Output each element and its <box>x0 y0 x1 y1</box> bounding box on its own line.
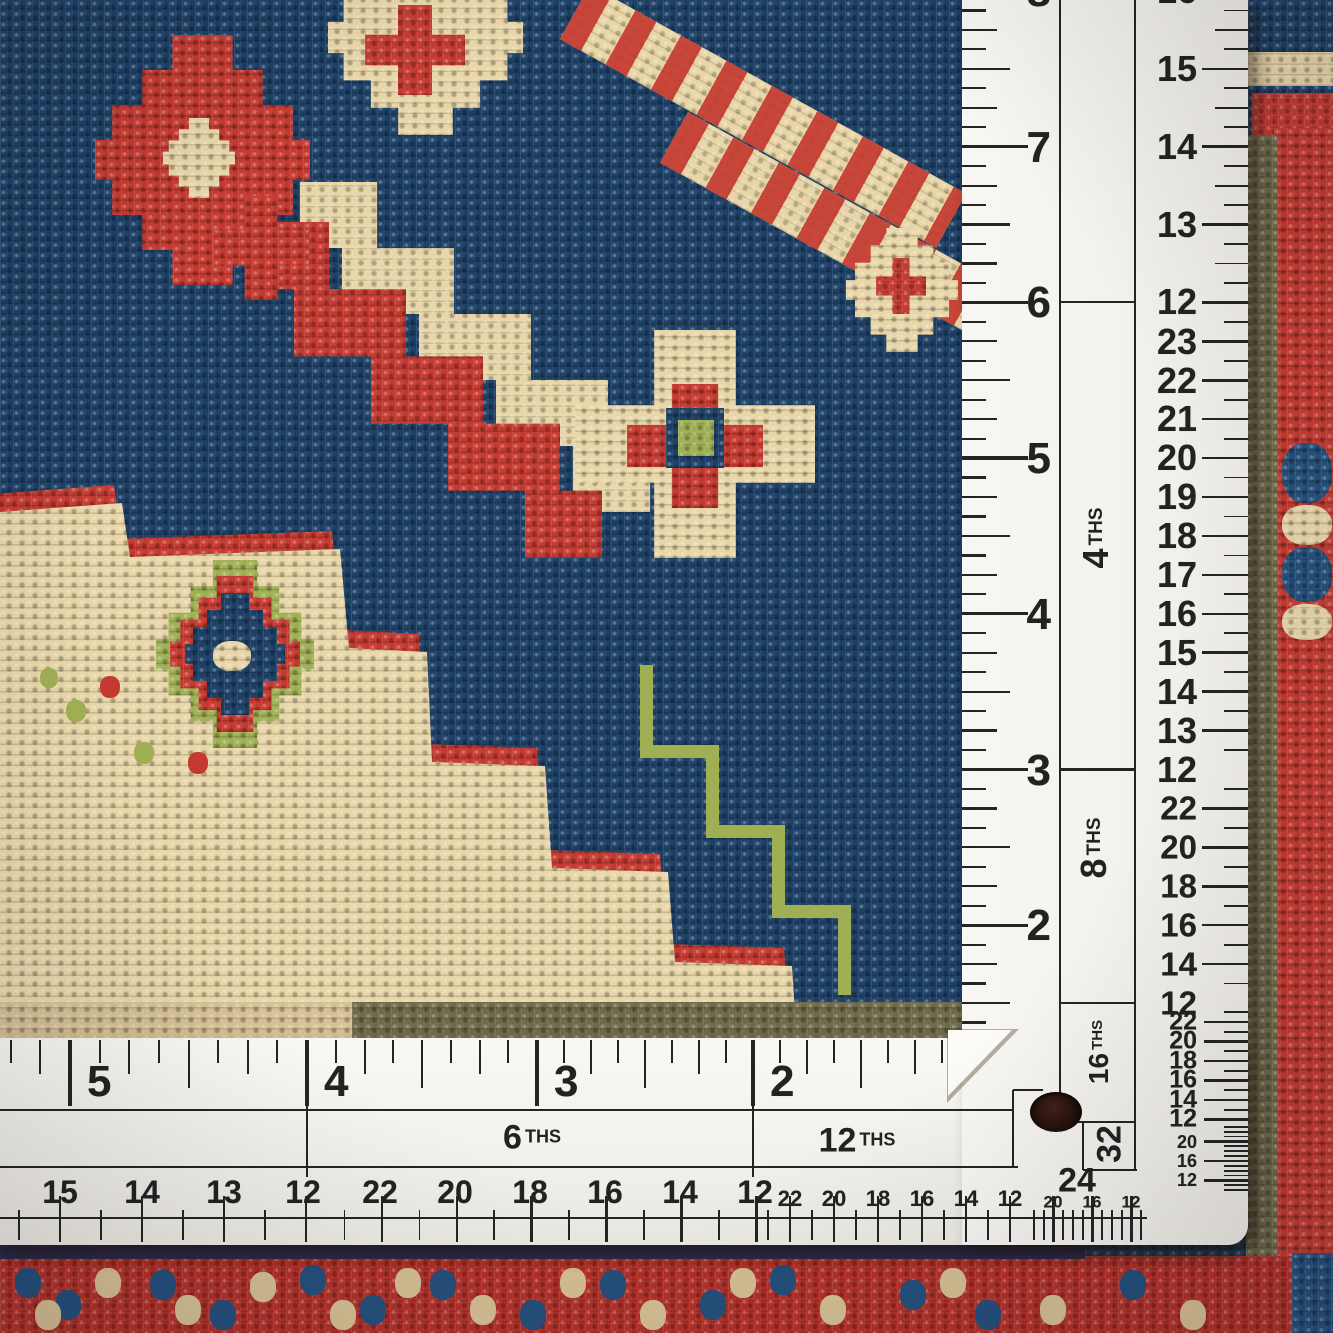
rug-topright-cream-stripe <box>1246 52 1333 86</box>
rug-confetti-dab <box>560 1268 586 1298</box>
rug-green-step-1 <box>640 665 653 755</box>
vertical-ruler <box>962 0 1248 1245</box>
rug-confetti-dab <box>360 1295 386 1325</box>
rug-fleck-red-2 <box>188 752 208 774</box>
rug-confetti-dab <box>330 1300 356 1330</box>
rug-confetti-dab <box>210 1300 236 1330</box>
rug-confetti-dab <box>700 1290 726 1320</box>
rug-confetti-dab <box>975 1300 1001 1330</box>
rug-green-step-5 <box>772 825 785 915</box>
rug-confetti-dab <box>520 1300 546 1330</box>
rug-fleck-green-3 <box>40 668 58 688</box>
rug-fringe-olive <box>352 1002 964 1040</box>
rug-fleck-green-2 <box>134 742 154 764</box>
rug-confetti-dab <box>640 1300 666 1330</box>
rug-confetti-dab <box>1040 1295 1066 1325</box>
rug-green-step-3 <box>706 745 719 835</box>
rug-right-rosette-blue-1 <box>1282 443 1332 503</box>
rug-medallion-cream-dot <box>213 641 251 671</box>
rug-confetti-dab <box>470 1295 496 1325</box>
rug-right-rosette-cream-2 <box>1282 604 1332 640</box>
rug-right-rosette-blue-2 <box>1282 547 1332 602</box>
rug-bottom-dark-line <box>0 1245 1085 1259</box>
rug-right-selvedge <box>1246 135 1278 1259</box>
rug-confetti-dab <box>1120 1270 1146 1300</box>
rug-confetti-dab <box>900 1280 926 1310</box>
rug-confetti-dab <box>395 1268 421 1298</box>
rug-confetti-dab <box>770 1265 796 1295</box>
rug-green-step-7 <box>838 905 851 995</box>
rug-confetti-dab <box>730 1268 756 1298</box>
rug-confetti-dab <box>250 1272 276 1302</box>
rug-fleck-red-1 <box>100 676 120 698</box>
rug-confetti-dab <box>820 1295 846 1325</box>
rug-bottomright-blue-patch <box>1292 1253 1333 1333</box>
rug-confetti-dab <box>300 1265 326 1295</box>
rug-confetti-dab <box>1180 1300 1206 1330</box>
rug-confetti-dab <box>95 1268 121 1298</box>
rug-confetti-dab <box>430 1270 456 1300</box>
rug-cross-green-centre <box>678 420 714 456</box>
rug-confetti-dab <box>600 1270 626 1300</box>
rug-confetti-dab <box>15 1268 41 1298</box>
rug-right-rosette-cream-1 <box>1282 505 1332 545</box>
rug-confetti-dab <box>940 1268 966 1298</box>
rug-confetti-dab <box>175 1295 201 1325</box>
photo-scene: 8765432161514131223222120191817161514131… <box>0 0 1333 1333</box>
rug-fleck-green-1 <box>66 700 86 722</box>
rug-fringe-beige <box>0 1002 360 1040</box>
rug-confetti-dab <box>150 1270 176 1300</box>
rug-right-red-band <box>1274 128 1333 1333</box>
rug-confetti-dab <box>35 1300 61 1330</box>
